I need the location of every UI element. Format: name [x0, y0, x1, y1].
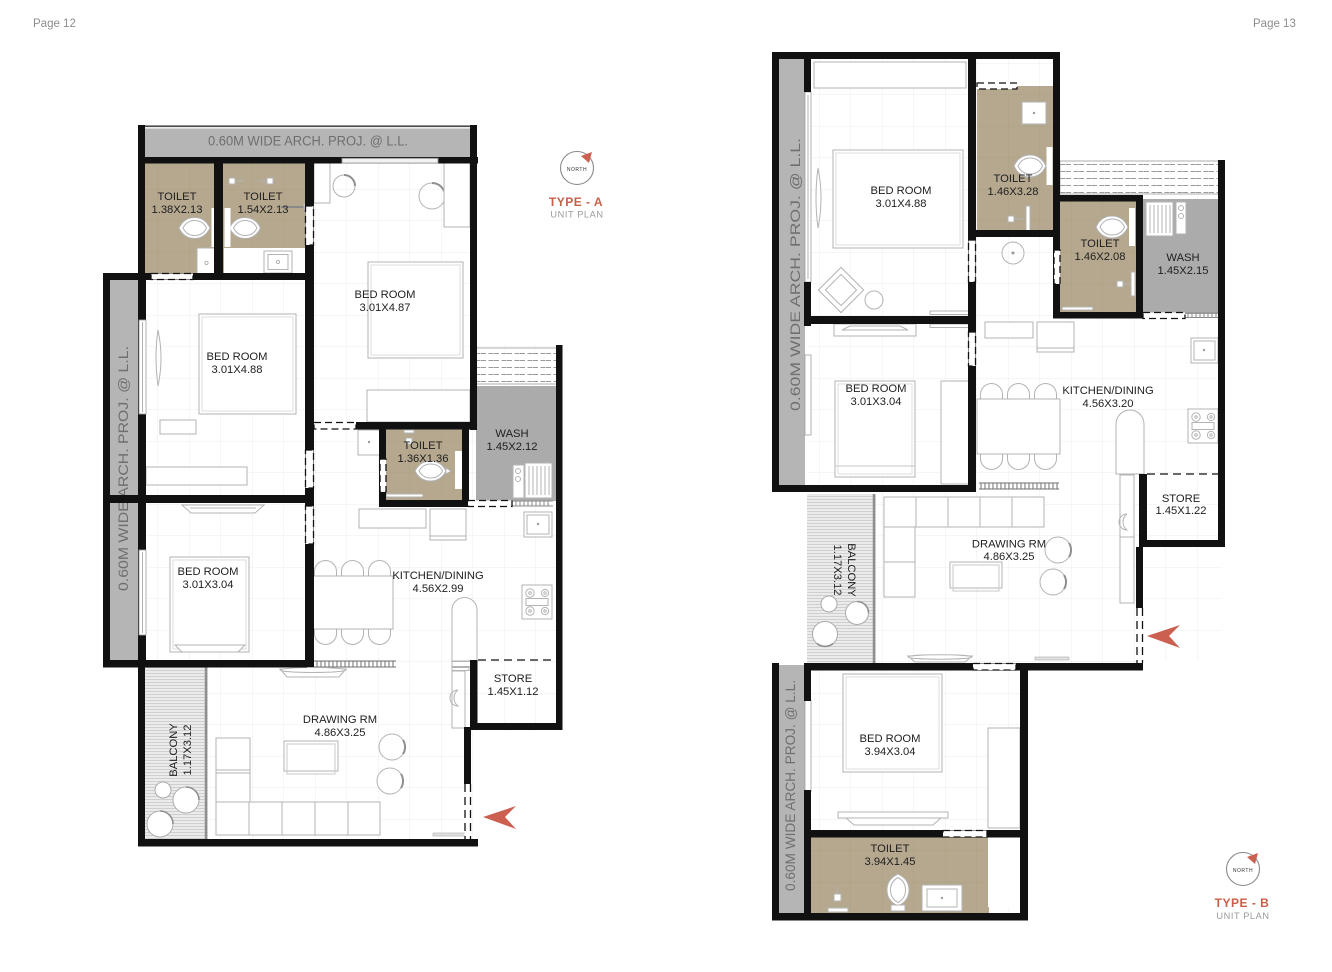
svg-text:BED ROOM: BED ROOM [178, 566, 239, 578]
svg-text:DRAWING RM: DRAWING RM [972, 539, 1046, 551]
svg-text:TOILET: TOILET [871, 843, 910, 855]
svg-text:3.01X3.04: 3.01X3.04 [850, 396, 901, 408]
svg-text:TOILET: TOILET [244, 191, 283, 203]
svg-text:1.46X3.28: 1.46X3.28 [987, 186, 1038, 198]
svg-text:NORTH: NORTH [567, 167, 587, 173]
svg-text:KITCHEN/DINING: KITCHEN/DINING [392, 570, 483, 582]
svg-text:1.38X2.13: 1.38X2.13 [151, 204, 202, 216]
svg-text:BED ROOM: BED ROOM [846, 383, 907, 395]
svg-text:1.45X2.15: 1.45X2.15 [1157, 265, 1208, 277]
svg-text:0.60M WIDE ARCH. PROJ. @: 0.60M WIDE ARCH. PROJ. @ L.L. [788, 138, 803, 411]
svg-text:Page 13: Page 13 [1253, 18, 1296, 30]
svg-text:DRAWING RM: DRAWING RM [303, 714, 377, 726]
svg-text:STORE: STORE [1162, 493, 1200, 505]
svg-text:TOILET: TOILET [1081, 238, 1120, 250]
svg-text:3.01X4.88: 3.01X4.88 [211, 364, 262, 376]
svg-text:TOILET: TOILET [994, 173, 1033, 185]
svg-text:3.94X3.04: 3.94X3.04 [864, 746, 915, 758]
svg-text:1.46X2.08: 1.46X2.08 [1074, 251, 1125, 263]
svg-text:TOILET: TOILET [158, 191, 197, 203]
svg-text:UNIT PLAN: UNIT PLAN [1216, 911, 1269, 921]
svg-text:4.56X3.20: 4.56X3.20 [1082, 398, 1133, 410]
svg-text:NORTH: NORTH [1233, 868, 1253, 874]
svg-text:4.86X3.25: 4.86X3.25 [983, 551, 1034, 563]
svg-text:1.36X1.36: 1.36X1.36 [397, 453, 448, 465]
svg-text:1.45X2.12: 1.45X2.12 [486, 441, 537, 453]
svg-text:TYPE - B: TYPE - B [1215, 896, 1270, 910]
svg-text:WASH: WASH [1166, 252, 1199, 264]
svg-text:0.60M WIDE ARCH. PROJ. @: 0.60M WIDE ARCH. PROJ. @ L.L. [116, 346, 131, 591]
svg-text:BED ROOM: BED ROOM [860, 733, 921, 745]
svg-text:0.60M WIDE ARCH. PROJ. @: 0.60M WIDE ARCH. PROJ. @ L.L. [783, 680, 798, 891]
svg-text:0.60M WIDE ARCH. PROJ. @: 0.60M WIDE ARCH. PROJ. @ L.L. [208, 134, 408, 149]
svg-text:1.54X2.13: 1.54X2.13 [237, 204, 288, 216]
svg-text:BED ROOM: BED ROOM [207, 351, 268, 363]
svg-text:STORE: STORE [494, 673, 532, 685]
svg-text:BED ROOM: BED ROOM [355, 289, 416, 301]
svg-text:TYPE - A: TYPE - A [549, 195, 603, 209]
svg-text:3.01X4.88: 3.01X4.88 [875, 198, 926, 210]
svg-text:3.01X3.04: 3.01X3.04 [182, 579, 233, 591]
svg-text:BED ROOM: BED ROOM [871, 185, 932, 197]
svg-text:Page 12: Page 12 [33, 18, 76, 30]
svg-text:4.86X3.25: 4.86X3.25 [314, 727, 365, 739]
svg-text:KITCHEN/DINING: KITCHEN/DINING [1062, 385, 1153, 397]
svg-text:WASH: WASH [495, 428, 528, 440]
svg-text:UNIT PLAN: UNIT PLAN [550, 210, 603, 220]
svg-text:4.56X2.99: 4.56X2.99 [412, 583, 463, 595]
svg-text:1.45X1.22: 1.45X1.22 [1155, 505, 1206, 517]
svg-text:3.94X1.45: 3.94X1.45 [864, 856, 915, 868]
svg-text:3.01X4.87: 3.01X4.87 [359, 302, 410, 314]
svg-text:TOILET: TOILET [404, 440, 443, 452]
svg-text:BALCONY: BALCONY [168, 723, 180, 777]
svg-text:1.17X3.12: 1.17X3.12 [182, 724, 194, 775]
svg-text:1.45X1.12: 1.45X1.12 [487, 686, 538, 698]
svg-text:BALCONY: BALCONY [845, 543, 857, 597]
svg-text:1.17X3.12: 1.17X3.12 [831, 544, 843, 595]
